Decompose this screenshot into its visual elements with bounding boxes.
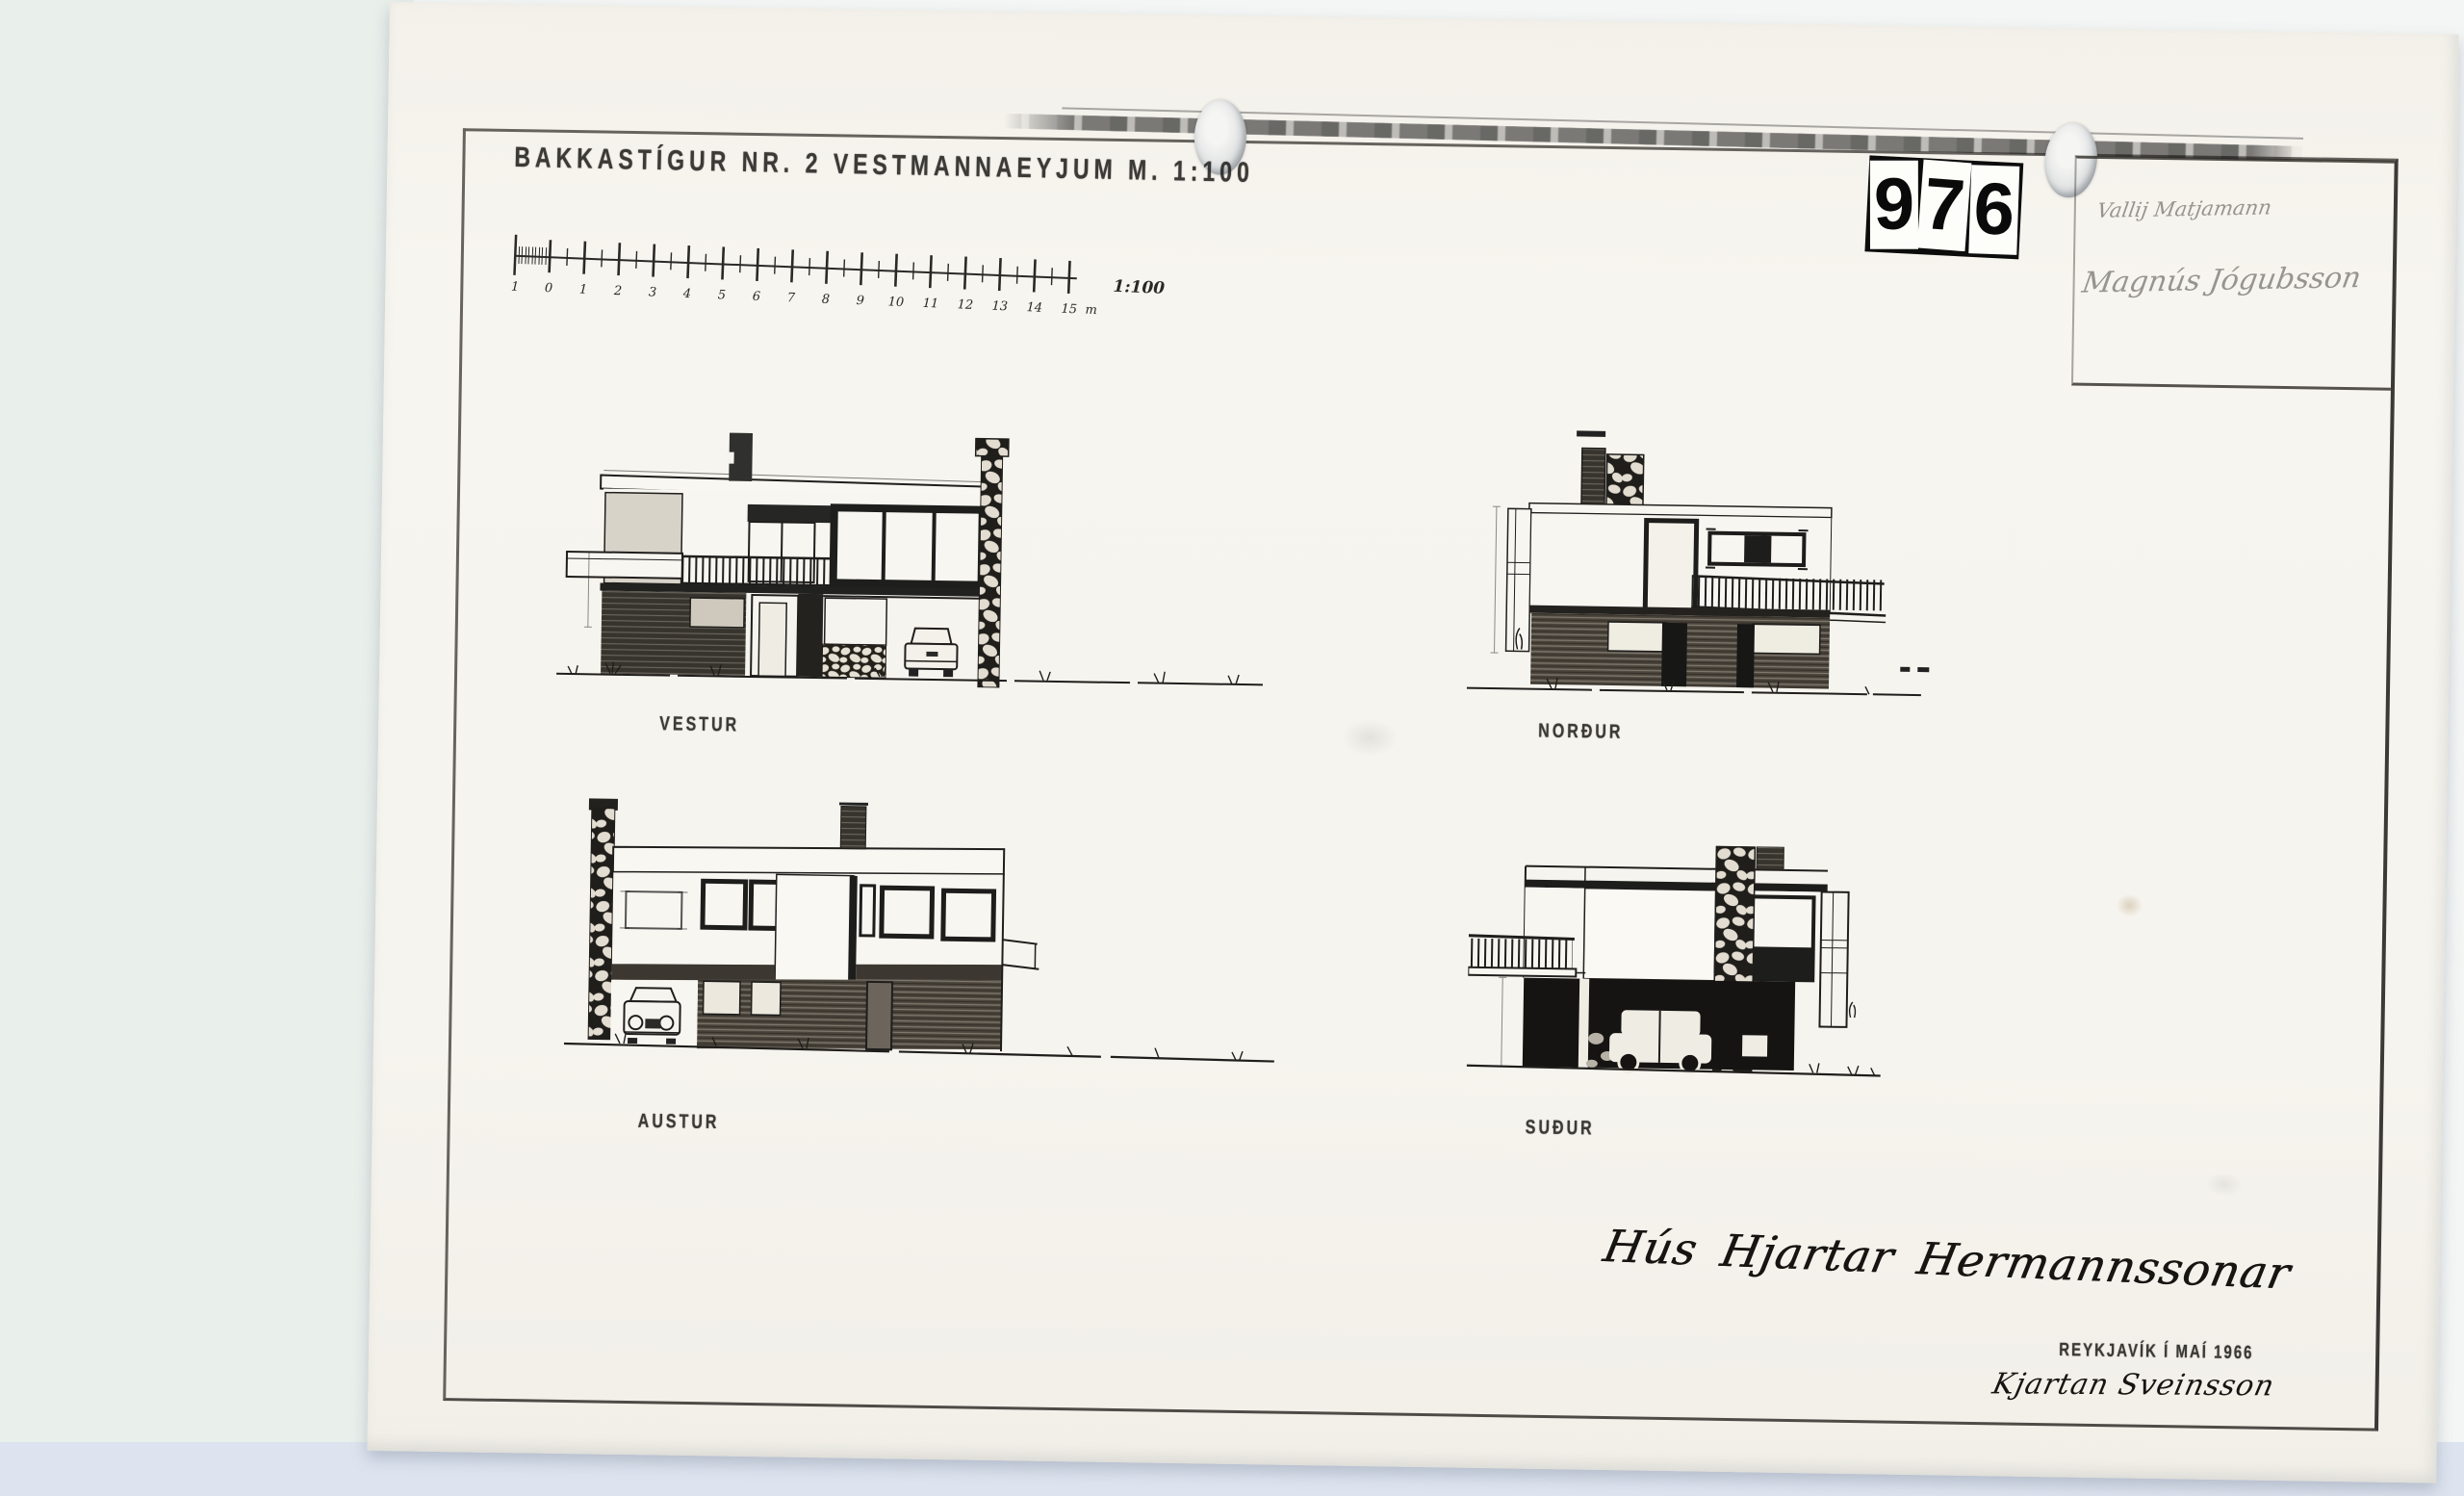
scale-bar-labels: 1 0 1 2 3 4 5 6 7 8 9 10 11 12 13 14 15 … — [511, 253, 1166, 321]
title-block: Vallij Matjamann Magnús Jógubsson — [2071, 156, 2395, 391]
svg-text:4: 4 — [682, 287, 692, 301]
svg-text:9: 9 — [856, 294, 864, 308]
east-carport-car — [610, 980, 698, 1045]
svg-text:5: 5 — [717, 288, 726, 302]
scanner-background-left — [0, 0, 414, 1496]
archive-number-stamp: 9 7 6 — [1864, 155, 2023, 259]
smudge-spot — [1341, 718, 1399, 758]
svg-text:10: 10 — [887, 295, 904, 310]
svg-text:1: 1 — [579, 283, 588, 297]
elevation-drawing-west — [543, 417, 1279, 717]
title-block-handwriting-1: Vallij Matjamann — [2095, 195, 2273, 221]
north-chimneys — [1576, 430, 1644, 506]
archive-digit-tile: 9 — [1870, 161, 1918, 249]
svg-text:12: 12 — [957, 297, 973, 313]
north-lower-floor — [1528, 606, 1830, 689]
svg-text:8: 8 — [821, 293, 830, 307]
svg-text:13: 13 — [991, 299, 1008, 315]
svg-text:7: 7 — [786, 291, 796, 305]
title-block-handwriting-2: Magnús Jógubsson — [2080, 261, 2364, 299]
archive-digit-tile: 7 — [1917, 160, 1972, 252]
elevation-drawing-north — [1464, 412, 1950, 728]
scanned-drawing-sheet: BAKKASTÍGUR NR. 2 VESTMANNAEYJUM M. 1:10… — [0, 0, 2464, 1496]
archive-digit-tile: 6 — [1968, 165, 2019, 255]
svg-text:m: m — [1085, 303, 1097, 318]
svg-text:15: 15 — [1061, 302, 1077, 318]
smudge-spot-2 — [2205, 1172, 2244, 1198]
svg-text:11: 11 — [922, 297, 938, 312]
elevation-label-east: AUSTUR — [638, 1111, 720, 1134]
svg-text:6: 6 — [752, 290, 760, 304]
east-roof — [613, 799, 1005, 878]
svg-text:2: 2 — [613, 284, 623, 298]
elevation-label-south: SUÐUR — [1526, 1118, 1595, 1141]
architect-signature: Kjartan Sveinsson — [1989, 1367, 2278, 1403]
south-balcony-railing — [1468, 936, 1586, 977]
svg-text:3: 3 — [649, 285, 657, 299]
elevation-label-west: VESTUR — [659, 713, 739, 736]
north-left-frame — [1491, 506, 1531, 654]
svg-text:14: 14 — [1026, 300, 1042, 316]
paper-sheet: BAKKASTÍGUR NR. 2 VESTMANNAEYJUM M. 1:10… — [367, 2, 2458, 1483]
elevation-drawing-south — [1466, 842, 1952, 1139]
place-date-stamp: REYKJAVÍK Í MAÍ 1966 — [2059, 1339, 2254, 1363]
elevation-label-north: NORÐUR — [1538, 721, 1624, 744]
scale-ratio-label: 1:100 — [1113, 277, 1166, 298]
elevation-drawing-east — [561, 794, 1288, 1114]
west-carport-car — [905, 628, 958, 677]
east-side-balcony — [1002, 940, 1039, 969]
svg-text:1: 1 — [511, 280, 520, 295]
svg-text:0: 0 — [545, 281, 553, 296]
